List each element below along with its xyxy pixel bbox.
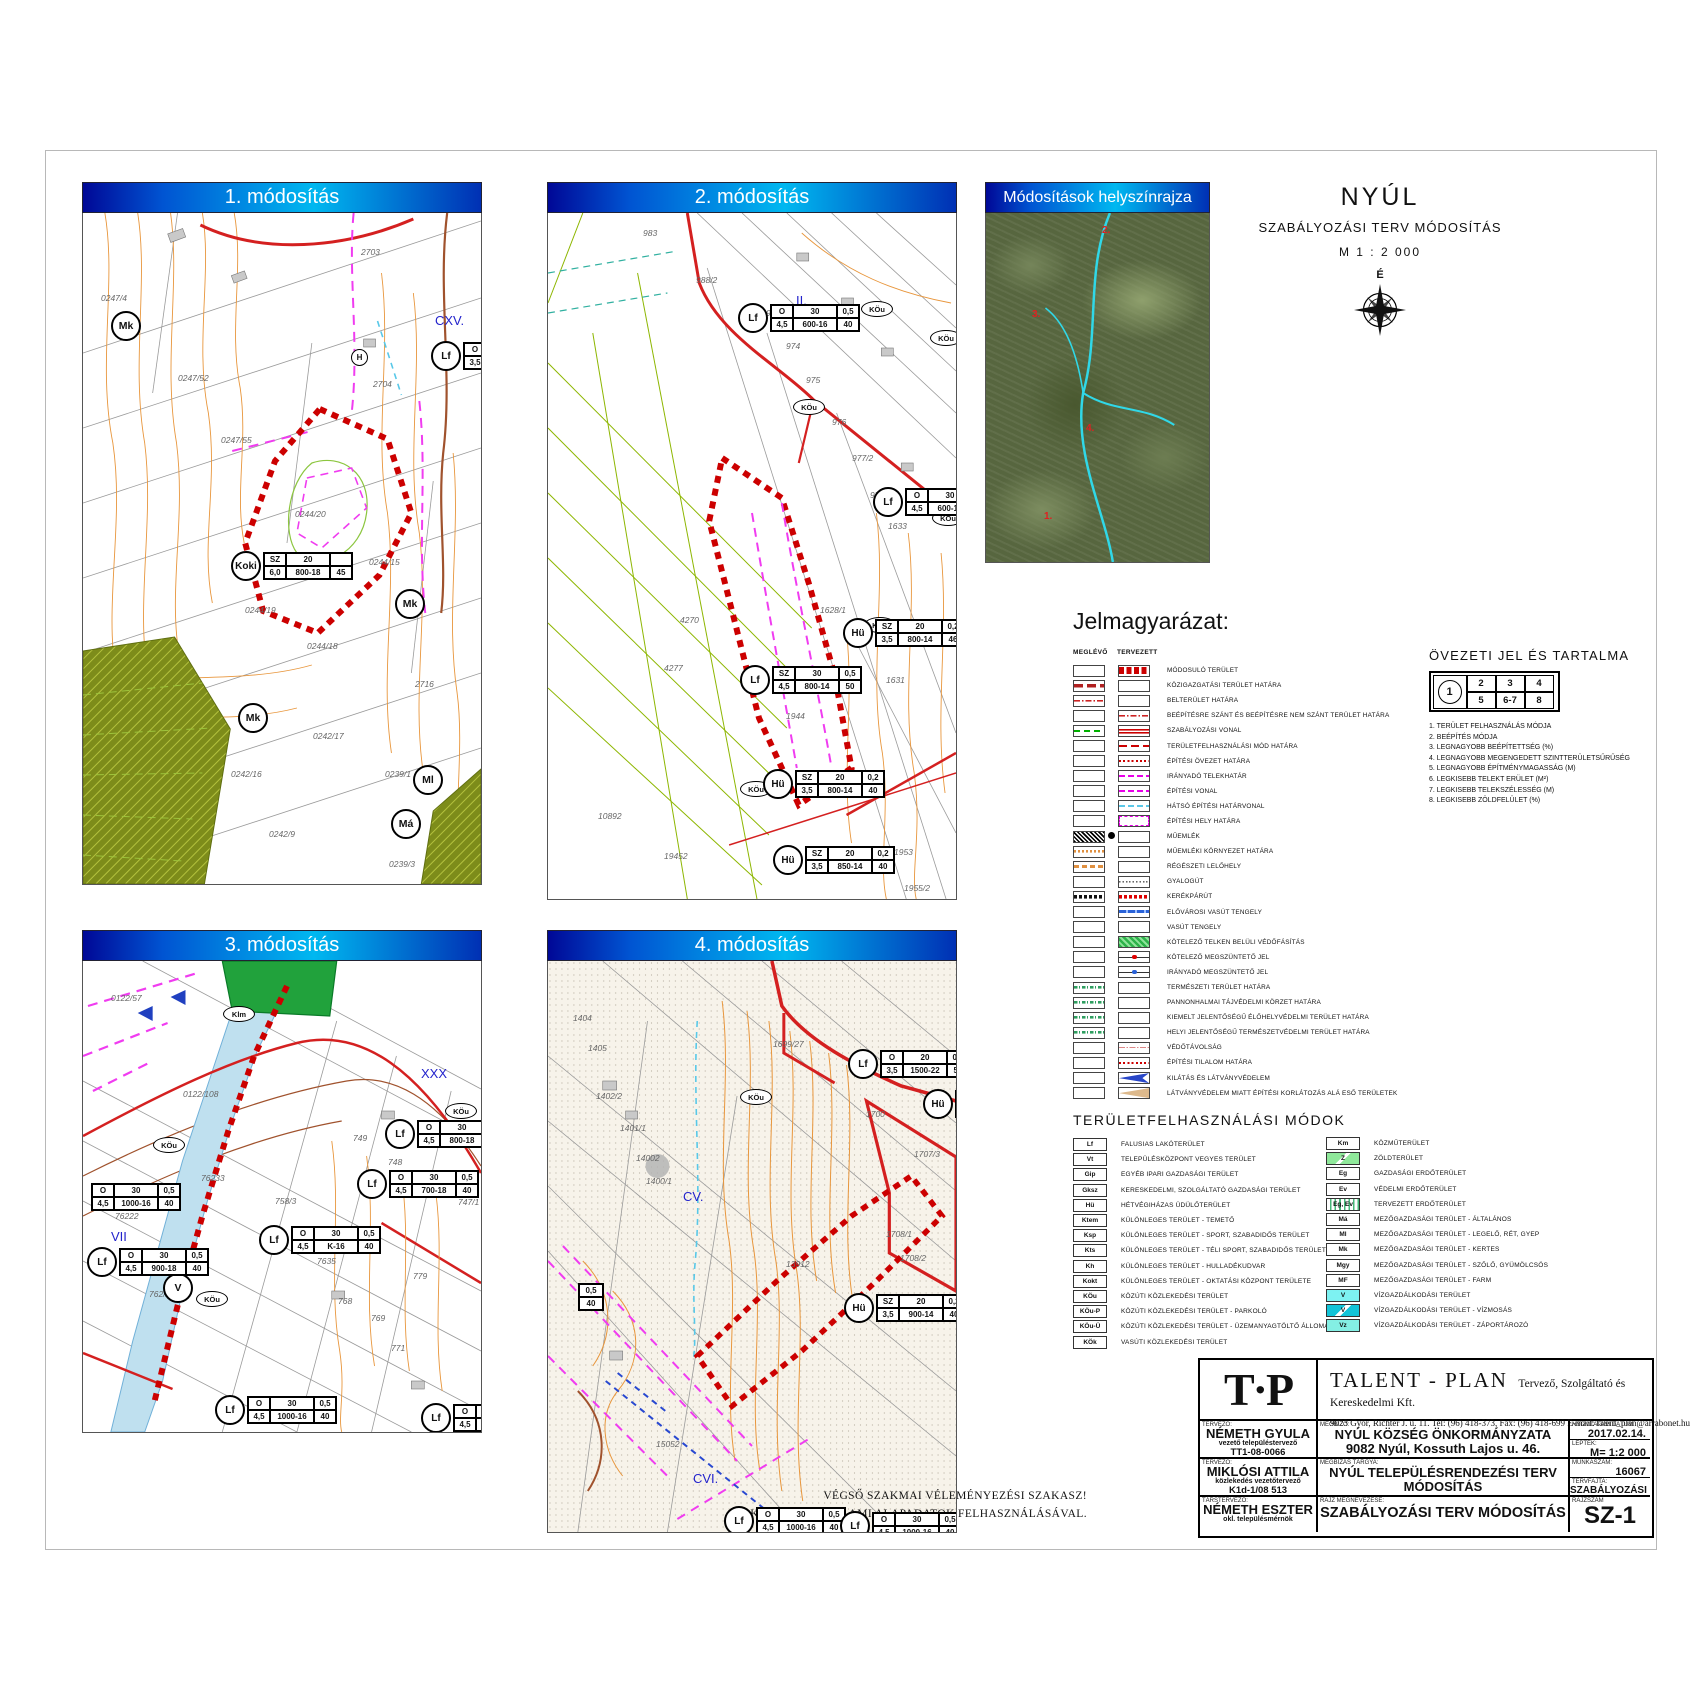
zone-values: O300,54,5800-1840 xyxy=(417,1120,482,1148)
zone-cell: 30 xyxy=(476,1405,482,1418)
plan-sheet: 1. módosítás xyxy=(0,0,1701,1701)
company-name: TALENT - PLAN xyxy=(1330,1368,1508,1392)
legend-swatch-planned-fill xyxy=(1119,983,1149,993)
plan-type-cell: TERVFAJTA: SZABÁLYOZÁSI xyxy=(1570,1478,1650,1497)
parcel-number: 1955/2 xyxy=(904,883,930,893)
designer-2-name: MIKLÓSI ATTILA xyxy=(1200,1466,1316,1478)
usage-mode-code: MF xyxy=(1326,1274,1360,1287)
zone-parameter-table: Lf O300,54,5K-1640 xyxy=(259,1225,381,1255)
legend-row: KIEMELT JELENTŐSÉGŰ ÉLŐHELYVÉDELMI TERÜL… xyxy=(1073,1010,1673,1025)
zone-cell: 40 xyxy=(456,1184,478,1197)
zone-cell: 3,5 xyxy=(956,1104,957,1117)
legend-swatch-existing-fill xyxy=(1074,937,1104,947)
parcel-number: 1628/1 xyxy=(820,605,846,615)
parcel-number: 1708/1 xyxy=(886,1229,912,1239)
usage-mode-row: Mk MEZŐGAZDASÁGI TERÜLET - KERTES xyxy=(1326,1242,1548,1257)
zone-parameter-table: Hü SZ200,23,5800-1440 xyxy=(763,769,885,799)
zone-cell: 600-16 xyxy=(793,318,837,331)
legend-swatch-planned xyxy=(1118,982,1150,994)
usage-mode-label: TELEPÜLÉSKÖZPONT VEGYES TERÜLET xyxy=(1121,1156,1256,1163)
legend-swatch-planned xyxy=(1118,876,1150,888)
zone-code: Lf xyxy=(848,1049,878,1079)
legend-swatch-planned-fill xyxy=(1119,1088,1149,1098)
drawing-name-value: SZABÁLYOZÁSI TERV MÓDOSÍTÁS xyxy=(1318,1506,1568,1520)
parcel-number: 0244/15 xyxy=(369,557,400,567)
parcel-number: 1700 xyxy=(866,1109,885,1119)
zone-cell: 800-14 xyxy=(818,784,862,797)
usage-mode-code: KÖk xyxy=(1073,1336,1107,1349)
zone-sign-explanation-line: 7. LEGKISEBB TELEKSZÉLESSÉG (M) xyxy=(1429,786,1669,797)
legend-swatch-planned-fill xyxy=(1119,832,1149,842)
legend-label: HÁTSÓ ÉPÍTÉSI HATÁRVONAL xyxy=(1167,803,1265,810)
usage-mode-label: KÖZÚTI KÖZLEKEDÉSI TERÜLET - PARKOLÓ xyxy=(1121,1308,1267,1315)
modification-site-marker: 4. xyxy=(1086,423,1094,434)
zone-sign-explanation-line: 8. LEGKISEBB ZÖLDFELÜLET (%) xyxy=(1429,796,1669,807)
usage-mode-label: VÍZGAZDÁLKODÁSI TERÜLET - VÍZMOSÁS xyxy=(1374,1307,1512,1314)
zone-values: O300,54,5600-1640 xyxy=(770,304,860,332)
legend-label: BEÉPÍTÉSRE SZÁNT ÉS BEÉPÍTÉSRE NEM SZÁNT… xyxy=(1167,712,1389,719)
zone-parameter-table: Lf O300,54,5900-1840 xyxy=(421,1403,482,1433)
zone-sign-explanation-line: 2. BEÉPÍTÉS MÓDJA xyxy=(1429,733,1669,744)
legend-swatch-planned-fill xyxy=(1119,922,1149,932)
parcel-number: 14002 xyxy=(636,1153,660,1163)
zone-cell: 3,5 xyxy=(796,784,818,797)
zone-cell: SZ xyxy=(877,1295,899,1308)
zone-cell: 30 xyxy=(142,1249,186,1262)
legend-swatch-planned xyxy=(1118,951,1150,963)
usage-mode-code: Gksz xyxy=(1073,1184,1107,1197)
zone-cell: 40 xyxy=(358,1240,380,1253)
legend-swatch-existing xyxy=(1073,936,1105,948)
usage-mode-row: KÖu KÖZÚTI KÖZLEKEDÉSI TERÜLET xyxy=(1073,1289,1345,1304)
designer-2-cell: TERVEZŐ: MIKLÓSI ATTILA közlekedés vezet… xyxy=(1200,1459,1318,1497)
legend-swatch-existing-fill xyxy=(1074,1058,1104,1068)
usage-mode-code: Ev xyxy=(1326,1183,1360,1196)
zone-cell: 40 xyxy=(943,1308,957,1321)
usage-mode-code: V xyxy=(1326,1289,1360,1302)
legend-label: GYALOGÚT xyxy=(1167,878,1204,885)
zone-values: O300,54,51000-1640 xyxy=(91,1183,181,1211)
zone-cell: 40 xyxy=(939,1526,957,1533)
co-designer-name: NÉMETH ESZTER xyxy=(1200,1504,1316,1516)
usage-mode-label: EGYÉB IPARI GAZDASÁGI TERÜLET xyxy=(1121,1171,1239,1178)
parcel-number: 1405 xyxy=(588,1043,607,1053)
parcel-number: 2704 xyxy=(373,379,392,389)
parcel-number: 1699/27 xyxy=(773,1039,804,1049)
usage-mode-code: Km xyxy=(1326,1137,1360,1150)
parcel-number: 974 xyxy=(786,341,800,351)
legend-swatch-planned xyxy=(1118,755,1150,767)
zone-code: Hü xyxy=(923,1089,953,1119)
zone-cell: 1000-16 xyxy=(270,1410,314,1423)
legend-swatch-planned-fill xyxy=(1119,1043,1149,1053)
legend-swatch-planned-fill xyxy=(1119,847,1149,857)
parcel-number: 1953 xyxy=(894,847,913,857)
legend-row: ÉPÍTÉSI HELY HATÁRA xyxy=(1073,814,1673,829)
zone-cell: 30 xyxy=(114,1184,158,1197)
parcel-number: 0244/18 xyxy=(307,641,338,651)
legend-swatch-existing xyxy=(1073,695,1105,707)
zone-sign-key: ÖVEZETI JEL ÉS TARTALMA 1 23456-78 1. TE… xyxy=(1429,648,1669,807)
legend-swatch-planned xyxy=(1118,1027,1150,1039)
usage-mode-code: Vz xyxy=(1326,1319,1360,1332)
zone-cell: 40 xyxy=(579,1297,603,1310)
zone-cell: 30 xyxy=(314,1227,358,1240)
legend-swatch-planned xyxy=(1118,921,1150,933)
zone-values: SZ200,23,5850-1440 xyxy=(805,846,895,874)
zone-label-circle: Mk xyxy=(238,703,268,733)
zone-parameter-table: Hü SZ200,23,5850-1440 xyxy=(773,845,895,875)
zone-cell: 0,5 xyxy=(456,1171,478,1184)
co-designer-role: okl. településmérnök xyxy=(1200,1516,1316,1524)
zone-code: Lf xyxy=(259,1225,289,1255)
legend-swatch-planned xyxy=(1118,680,1150,692)
zone-cell: 50 xyxy=(839,680,861,693)
zone-parameter-table: Lf O300,54,51000-1640 xyxy=(215,1395,337,1425)
legend-swatch-existing xyxy=(1073,997,1105,1009)
legend-swatch-planned xyxy=(1118,1087,1150,1099)
legend-row: KERÉKPÁRÚT xyxy=(1073,889,1673,904)
usage-modes: TERÜLETFELHASZNÁLÁSI MÓDOK Lf FALUSIAS L… xyxy=(1073,1112,1345,1350)
zone-parameter-table: Lf O200,43,51500-2250 xyxy=(848,1049,957,1079)
parcel-number: 0242/9 xyxy=(269,829,295,839)
zone-cell: SZ xyxy=(264,553,286,566)
usage-mode-label: VÍZGAZDÁLKODÁSI TERÜLET - ZÁPORTÁROZÓ xyxy=(1374,1322,1528,1329)
usage-mode-code: KÖu-Ü xyxy=(1073,1320,1107,1333)
zone-cell: 4,5 xyxy=(906,502,928,515)
zone-cell: O xyxy=(464,343,482,356)
legend-swatch-existing-fill xyxy=(1074,998,1104,1008)
zone-code: Lf xyxy=(740,665,770,695)
block-number-label: CVI. xyxy=(693,1471,718,1486)
zone-values: SZ200,23,5800-1446 xyxy=(875,619,957,647)
legend-row: ÉPÍTÉSI TILALOM HATÁRA xyxy=(1073,1055,1673,1070)
legend-swatch-planned-fill xyxy=(1119,771,1149,781)
zone-cell: 0,5 xyxy=(579,1284,603,1297)
footnote-phase: VÉGSŐ SZAKMAI VÉLEMÉNYEZÉSI SZAKASZ! xyxy=(823,1490,1087,1502)
drawing-name-label: RAJZ MEGNEVEZÉSE: xyxy=(1318,1497,1568,1504)
client-name: NYÚL KÖZSÉG ÖNKORMÁNYZATA xyxy=(1318,1428,1568,1442)
legend-row: RÉGÉSZETI LELŐHELY xyxy=(1073,859,1673,874)
legend-swatch-planned-fill xyxy=(1119,1058,1149,1068)
legend-label: LÁTVÁNYVÉDELEM MIATT ÉPÍTÉSI KORLÁTOZÁS … xyxy=(1167,1090,1397,1097)
zone-sign-explanation-line: 3. LEGNAGYOBB BEÉPÍTETTSÉG (%) xyxy=(1429,743,1669,754)
aerial-route-overlay xyxy=(986,213,1209,562)
legend-swatch-existing-fill xyxy=(1074,847,1104,857)
zone-cell: 30 xyxy=(270,1397,314,1410)
zone-cell: 40 xyxy=(872,860,894,873)
usage-mode-code: Eg, Ev xyxy=(1326,1198,1360,1211)
usage-mode-label: MEZŐGAZDASÁGI TERÜLET - ÁLTALÁNOS xyxy=(1374,1216,1512,1223)
zone-sign-grid: 23456-78 xyxy=(1467,675,1554,709)
legend-swatch-existing-fill xyxy=(1074,711,1104,721)
commission-line-1: NYÚL TELEPÜLÉSRENDEZÉSI TERV xyxy=(1318,1466,1568,1480)
zone-cell: 0,5 xyxy=(314,1397,336,1410)
parcel-number: 1400/1 xyxy=(646,1176,672,1186)
usage-mode-row: Km KÖZMŰTERÜLET xyxy=(1326,1136,1548,1151)
zone-cell: 30 xyxy=(793,305,837,318)
legend-swatch-existing-fill xyxy=(1074,681,1104,691)
panel-modification-2: 2. módosítás xyxy=(547,182,957,900)
usage-mode-code: Mk xyxy=(1326,1243,1360,1256)
legend-row: HELYI JELENTŐSÉGŰ TERMÉSZETVÉDELMI TERÜL… xyxy=(1073,1025,1673,1040)
usage-mode-code: Kh xyxy=(1073,1260,1107,1273)
usage-mode-row: Gksz KERESKEDELMI, SZOLGÁLTATÓ GAZDASÁGI… xyxy=(1073,1183,1345,1198)
zone-cell: 1000-16 xyxy=(895,1526,939,1533)
parcel-number: 2716 xyxy=(415,679,434,689)
legend-label: ÉPÍTÉSI ÖVEZET HATÁRA xyxy=(1167,758,1250,765)
parcel-number: 19452 xyxy=(664,851,688,861)
zone-cell: 30 xyxy=(412,1171,456,1184)
parcel-number: 758/3 xyxy=(275,1196,296,1206)
aerial-photo: 1.2.3.4. xyxy=(985,213,1210,563)
legend-swatch-planned-fill xyxy=(1119,711,1149,721)
legend-swatch-planned-fill xyxy=(1119,726,1149,736)
legend-row: MŰEMLÉKI KÖRNYEZET HATÁRA xyxy=(1073,844,1673,859)
zone-values: O303,5800-18 xyxy=(463,342,482,370)
legend-swatch-planned xyxy=(1118,861,1150,873)
legend-swatch-existing xyxy=(1073,800,1105,812)
block-number-label: XXX xyxy=(421,1066,447,1081)
job-number-value: 16067 xyxy=(1570,1466,1650,1478)
zone-cell xyxy=(330,553,352,566)
legend-row: KILÁTÁS ÉS LÁTVÁNYVÉDELEM xyxy=(1073,1071,1673,1086)
usage-mode-label: TERVEZETT ERDŐTERÜLET xyxy=(1374,1201,1466,1208)
legend-swatch-planned xyxy=(1118,1057,1150,1069)
zone-cell: 4,5 xyxy=(390,1184,412,1197)
zone-cell: 20 xyxy=(898,620,942,633)
client-cell: MEGBÍZÓ: NYÚL KÖZSÉG ÖNKORMÁNYZATA 9082 … xyxy=(1318,1421,1570,1459)
parcel-number: 10892 xyxy=(598,811,622,821)
usage-mode-code: V xyxy=(1326,1304,1360,1317)
parcel-number: 0244/20 xyxy=(295,509,326,519)
legend-swatch-planned-fill xyxy=(1119,937,1149,947)
legend-swatch-planned xyxy=(1118,846,1150,858)
zone-cell: 850-14 xyxy=(828,860,872,873)
usage-mode-label: KÜLÖNLEGES TERÜLET - SPORT, SZABADIDŐS T… xyxy=(1121,1232,1310,1239)
legend-swatch-existing-fill xyxy=(1074,756,1104,766)
zone-cell: 30 xyxy=(895,1513,939,1526)
zone-cell: O xyxy=(873,1513,895,1526)
block-number-label: VII xyxy=(111,1229,127,1244)
zone-parameter-table: Lf O300,54,51000-1640 xyxy=(840,1511,957,1533)
legend-swatch-existing xyxy=(1073,831,1105,843)
zone-code: Lf xyxy=(873,487,903,517)
aerial-header: Módosítások helyszínrajza xyxy=(985,182,1210,213)
parcel-number: 768 xyxy=(338,1296,352,1306)
zone-values: O300,54,5700-1840 xyxy=(389,1170,479,1198)
legend-swatch-planned xyxy=(1118,770,1150,782)
zone-cell: 3,5 xyxy=(464,356,482,369)
titleblock: T·P TALENT - PLAN Tervező, Szolgáltató é… xyxy=(1198,1358,1654,1538)
legend-swatch-existing xyxy=(1073,755,1105,767)
zone-code: Hü xyxy=(763,769,793,799)
usage-mode-code: Kokt xyxy=(1073,1275,1107,1288)
zone-cell: 4,5 xyxy=(771,318,793,331)
zone-code: Lf xyxy=(738,303,768,333)
parcel-number: 0242/17 xyxy=(313,731,344,741)
zone-code: Lf xyxy=(840,1511,870,1533)
zone-sign-cell: 5 xyxy=(1467,692,1496,709)
legend-row: VÉDŐTÁVOLSÁG xyxy=(1073,1040,1673,1055)
legend-label: KILÁTÁS ÉS LÁTVÁNYVÉDELEM xyxy=(1167,1075,1270,1082)
zone-code: Hü xyxy=(773,845,803,875)
print-date-cell: NYOMTATÁSI DÁTUM 2017.02.14. xyxy=(1570,1421,1650,1440)
zone-cell: 900-18 xyxy=(142,1262,186,1275)
legend-row: PANNONHALMAI TÁJVÉDELMI KÖRZET HATÁRA xyxy=(1073,995,1673,1010)
zone-cell: O xyxy=(906,489,928,502)
panel-3-header: 3. módosítás xyxy=(82,930,482,961)
page-subtitle: SZABÁLYOZÁSI TERV MÓDOSÍTÁS xyxy=(1240,220,1520,235)
zone-values: SZ200,23,5900-1440 xyxy=(955,1090,957,1118)
print-date-value: 2017.02.14. xyxy=(1570,1428,1650,1440)
parcel-number: 7635 xyxy=(317,1256,336,1266)
zone-sign-cell: 6-7 xyxy=(1496,692,1525,709)
road-label-oval: KÖu xyxy=(740,1089,772,1105)
zone-cell: 4,5 xyxy=(418,1134,440,1147)
usage-mode-code: Ml xyxy=(1326,1228,1360,1241)
zone-parameter-table: Lf O303,5800-18 xyxy=(431,341,482,371)
zone-sign-circle-value: 1 xyxy=(1438,680,1462,704)
zone-label-circle: KÖu xyxy=(445,1103,477,1119)
legend-label: KÖTELEZŐ MEGSZÜNTETŐ JEL xyxy=(1167,954,1269,961)
legend-swatch-existing-fill xyxy=(1074,862,1104,872)
panel-4-map: 140414051402/21401/1140021400/11699/2717… xyxy=(547,961,957,1533)
usage-mode-row: Vt TELEPÜLÉSKÖZPONT VEGYES TERÜLET xyxy=(1073,1152,1345,1167)
zone-code: Hü xyxy=(844,1293,874,1323)
zone-label-circle: KÖu xyxy=(196,1291,228,1307)
parcel-number: 1633 xyxy=(888,521,907,531)
usage-mode-row: Kokt KÜLÖNLEGES TERÜLET - OKTATÁSI KÖZPO… xyxy=(1073,1274,1345,1289)
zone-cell: 0,5 xyxy=(839,667,861,680)
legend-col-planned: TERVEZETT xyxy=(1117,649,1158,656)
panel-3-map: 0122/570122/1087623376222758/3749748747/… xyxy=(82,961,482,1433)
scale-label: LÉPTÉK: xyxy=(1570,1440,1650,1447)
legend-swatch-existing xyxy=(1073,876,1105,888)
parcel-number: 0239/1 xyxy=(385,769,411,779)
parcel-number: 1944 xyxy=(786,711,805,721)
zone-cell: 0,5 xyxy=(358,1227,380,1240)
legend-swatch-planned xyxy=(1118,725,1150,737)
designer-1-cell: TERVEZŐ: NÉMETH GYULA vezető településte… xyxy=(1200,1421,1318,1459)
drawing-number-value: SZ-1 xyxy=(1570,1504,1650,1528)
zone-values: O300,54,51000-1640 xyxy=(756,1507,846,1533)
legend-swatch-existing-fill xyxy=(1074,967,1104,977)
usage-mode-code: KÖu-P xyxy=(1073,1305,1107,1318)
legend-swatch-planned-fill xyxy=(1119,952,1149,962)
company-logo: T·P xyxy=(1200,1360,1318,1421)
zone-cell: O xyxy=(881,1051,903,1064)
map-4-drawing xyxy=(548,961,956,1532)
legend-label: TERÜLETFELHASZNÁLÁSI MÓD HATÁRA xyxy=(1167,743,1298,750)
zone-cell: 20 xyxy=(899,1295,943,1308)
legend-swatch-existing xyxy=(1073,906,1105,918)
zone-cell: 0,5 xyxy=(186,1249,208,1262)
usage-mode-code: Ksp xyxy=(1073,1229,1107,1242)
parcel-number: 0247/55 xyxy=(221,435,252,445)
usage-mode-label: MEZŐGAZDASÁGI TERÜLET - KERTES xyxy=(1374,1246,1500,1253)
legend-swatch-existing-fill xyxy=(1074,741,1104,751)
legend-swatch-existing-fill xyxy=(1074,892,1104,902)
usage-mode-row: V VÍZGAZDÁLKODÁSI TERÜLET xyxy=(1326,1288,1548,1303)
zone-values: O300,54,5900-1840 xyxy=(119,1248,209,1276)
legend-swatch-planned-fill xyxy=(1119,892,1149,902)
company-info: TALENT - PLAN Tervező, Szolgáltató és Ke… xyxy=(1318,1360,1652,1421)
legend-swatch-planned xyxy=(1118,695,1150,707)
legend-swatch-planned-fill xyxy=(1119,666,1149,676)
legend-swatch-planned xyxy=(1118,710,1150,722)
legend-col-existing: MEGLÉVŐ xyxy=(1073,649,1108,656)
zone-cell: 3,5 xyxy=(806,860,828,873)
zone-cell: 4,5 xyxy=(873,1526,895,1533)
zone-label-circle: Mk xyxy=(395,589,425,619)
usage-mode-code: Lf xyxy=(1073,1138,1107,1151)
usage-mode-label: KERESKEDELMI, SZOLGÁLTATÓ GAZDASÁGI TERÜ… xyxy=(1121,1187,1301,1194)
zone-sign-cell: 2 xyxy=(1467,675,1496,692)
zone-sign-cell: 4 xyxy=(1525,675,1554,692)
usage-mode-label: ZÖLDTERÜLET xyxy=(1374,1155,1423,1162)
parcel-number: 977/2 xyxy=(852,453,873,463)
legend-swatch-planned-fill xyxy=(1119,907,1149,917)
usage-mode-label: KÖZÚTI KÖZLEKEDÉSI TERÜLET - ÜZEMANYAGTÖ… xyxy=(1121,1323,1333,1330)
legend-swatch-existing xyxy=(1073,1027,1105,1039)
usage-mode-row: Kh KÜLÖNLEGES TERÜLET - HULLADÉKUDVAR xyxy=(1073,1259,1345,1274)
parcel-number: 76222 xyxy=(115,1211,139,1221)
legend-swatch-existing xyxy=(1073,1042,1105,1054)
legend-label: MŰEMLÉK xyxy=(1167,833,1200,840)
zone-values: 0,540 xyxy=(578,1283,604,1311)
zone-code: Lf xyxy=(385,1119,415,1149)
legend-swatch-existing xyxy=(1073,921,1105,933)
legend-label: KÖZIGAZGATÁSI TERÜLET HATÁRA xyxy=(1167,682,1282,689)
job-number-cell: MUNKASZÁM: 16067 xyxy=(1570,1459,1650,1478)
zone-cell: O xyxy=(454,1405,476,1418)
legend-swatch-planned-fill xyxy=(1119,741,1149,751)
zone-sign-explanation-line: 6. LEGKISEBB TELEKT ERÜLET (M²) xyxy=(1429,775,1669,786)
usage-mode-code: Z xyxy=(1326,1152,1360,1165)
zone-sign-heading: ÖVEZETI JEL ÉS TARTALMA xyxy=(1429,648,1669,663)
zone-cell: 3,5 xyxy=(877,1308,899,1321)
usage-mode-label: VÉDELMI ERDŐTERÜLET xyxy=(1374,1186,1457,1193)
parcel-number: 0122/57 xyxy=(111,993,142,1003)
parcel-number: 1404 xyxy=(573,1013,592,1023)
zone-cell: 4,5 xyxy=(248,1410,270,1423)
zone-cell: 0,2 xyxy=(872,847,894,860)
zone-cell: 40 xyxy=(158,1197,180,1210)
legend-swatch-existing xyxy=(1073,725,1105,737)
legend-label: BELTERÜLET HATÁRA xyxy=(1167,697,1238,704)
legend-label: IRÁNYADÓ MEGSZÜNTETŐ JEL xyxy=(1167,969,1268,976)
parcel-number: 76233 xyxy=(201,1173,225,1183)
legend-label: MŰEMLÉKI KÖRNYEZET HATÁRA xyxy=(1167,848,1273,855)
legend-swatch-planned-fill xyxy=(1119,1028,1149,1038)
zone-values: SZ300,54,5800-1450 xyxy=(772,666,862,694)
zone-cell: 46 xyxy=(942,633,957,646)
parcel-number: 771 xyxy=(391,1343,405,1353)
zone-cell: 20 xyxy=(286,553,330,566)
legend-label: ÉPÍTÉSI TILALOM HATÁRA xyxy=(1167,1059,1252,1066)
legend-swatch-planned xyxy=(1118,906,1150,918)
parcel-number: 4270 xyxy=(680,615,699,625)
usage-mode-code: KÖu xyxy=(1073,1290,1107,1303)
zone-code: Lf xyxy=(215,1395,245,1425)
zone-parameter-table: Lf O300,54,5900-1840 xyxy=(87,1247,209,1277)
zone-cell: 800-14 xyxy=(898,633,942,646)
legend-label: VASÚT TENGELY xyxy=(1167,924,1221,931)
usage-modes-left: Lf FALUSIAS LAKÓTERÜLET Vt TELEPÜLÉSKÖZP… xyxy=(1073,1137,1345,1350)
zone-code: Lf xyxy=(421,1403,451,1433)
legend-swatch-existing-fill xyxy=(1074,801,1104,811)
